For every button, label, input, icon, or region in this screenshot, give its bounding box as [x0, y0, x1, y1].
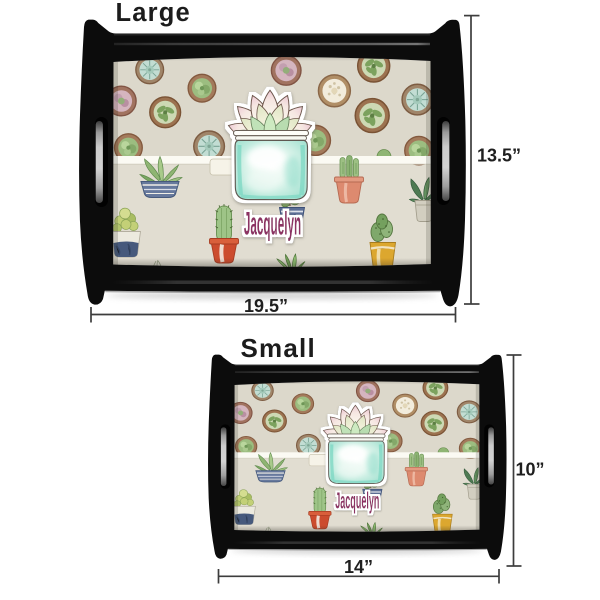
svg-text:Small: Small — [241, 333, 316, 363]
svg-text:14”: 14” — [344, 557, 373, 577]
svg-text:19.5”: 19.5” — [244, 296, 288, 316]
svg-text:Large: Large — [116, 0, 191, 27]
svg-text:10”: 10” — [516, 460, 545, 480]
svg-text:13.5”: 13.5” — [477, 146, 521, 166]
